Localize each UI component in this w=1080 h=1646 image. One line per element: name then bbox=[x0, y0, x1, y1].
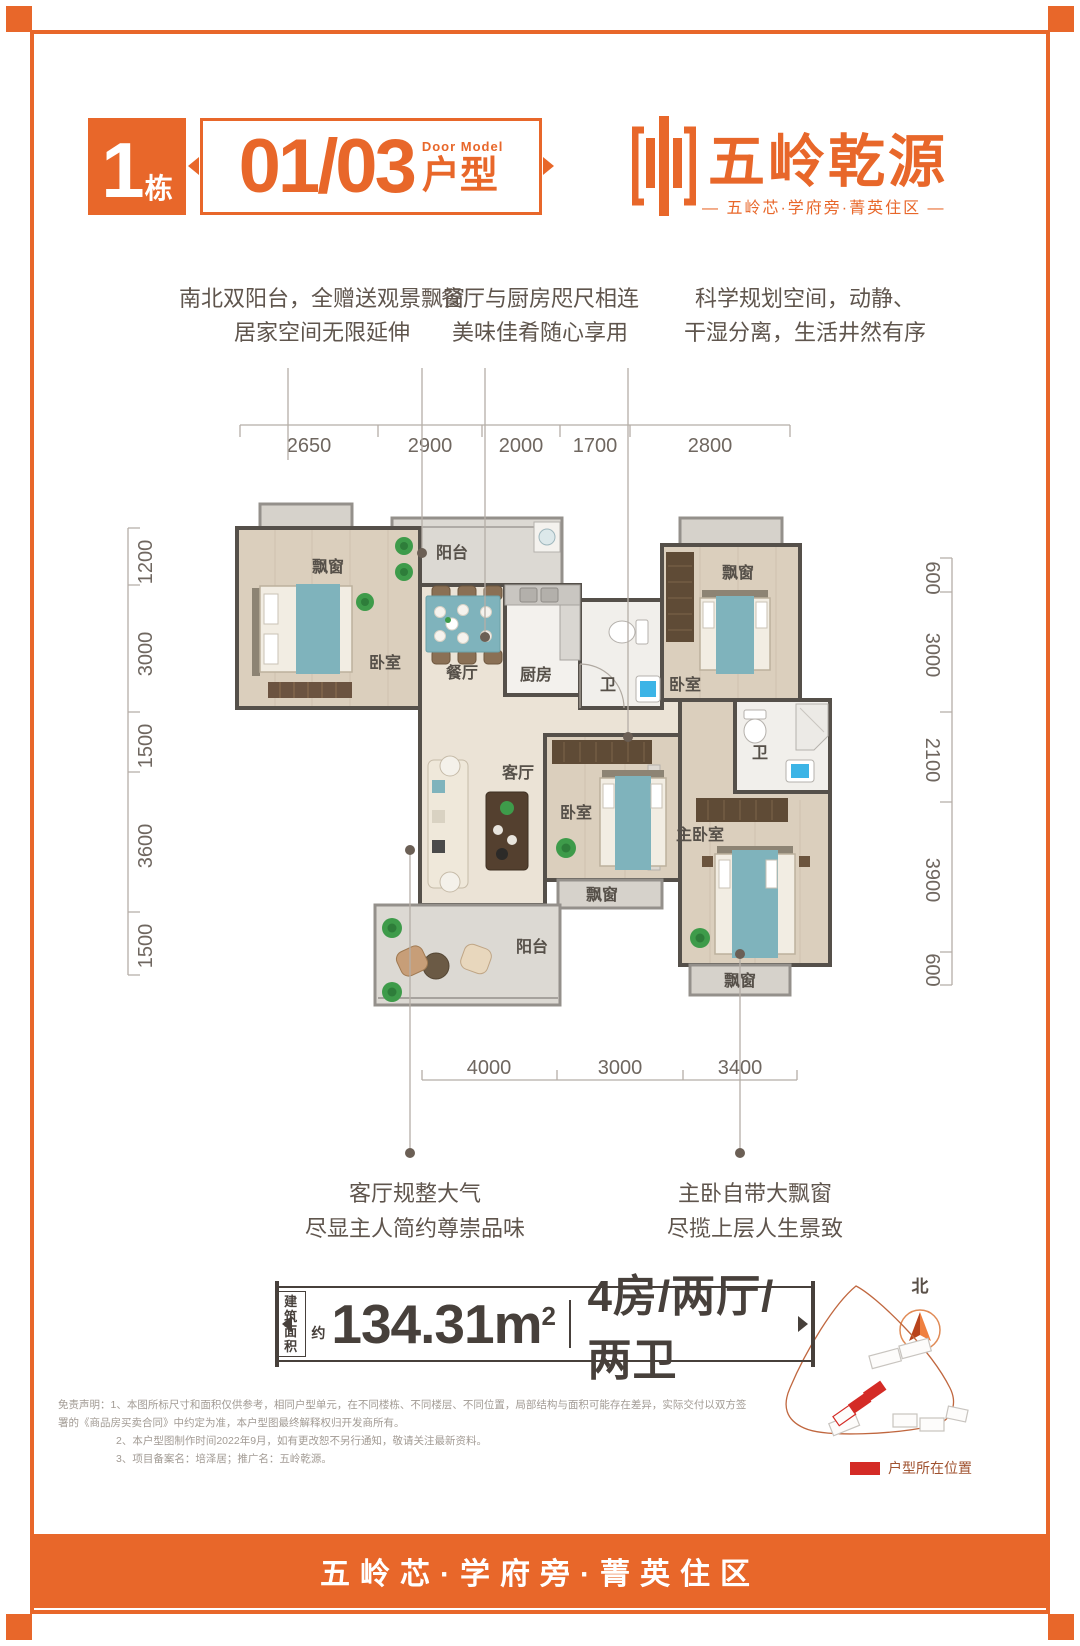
coffee-table bbox=[486, 792, 528, 870]
dim-top-2: 2900 bbox=[408, 435, 453, 457]
sofa bbox=[428, 756, 468, 892]
dim-right-5: 600 bbox=[921, 953, 943, 986]
legend-label: 户型所在位置 bbox=[888, 1460, 972, 1476]
room-label-balcony-south: 阳台 bbox=[516, 937, 548, 956]
bar-arrow-icon bbox=[798, 1316, 808, 1332]
bar-cap bbox=[275, 1281, 279, 1367]
dim-right-1: 600 bbox=[921, 561, 943, 594]
dim-left-2: 3000 bbox=[135, 632, 157, 677]
room-label-bath-2: 卫 bbox=[752, 745, 768, 762]
plant-icon bbox=[356, 593, 374, 611]
bed-2 bbox=[700, 590, 770, 674]
room-label-balcony-north: 阳台 bbox=[436, 543, 468, 562]
dim-right-4: 3900 bbox=[921, 858, 943, 903]
plant-icon bbox=[556, 838, 576, 858]
room-label-dining: 餐厅 bbox=[445, 663, 478, 682]
basin-icon bbox=[636, 676, 660, 702]
bed-3 bbox=[600, 770, 666, 870]
wardrobe bbox=[666, 552, 694, 642]
legend-swatch bbox=[850, 1462, 880, 1475]
toilet-icon bbox=[744, 710, 766, 743]
room-label-living: 客厅 bbox=[502, 763, 534, 782]
disclaimer-line: 3、项目备案名：培泽居；推广名：五岭乾源。 bbox=[58, 1450, 748, 1468]
dim-top-4: 1700 bbox=[573, 435, 618, 457]
approx-label: 约 bbox=[311, 1323, 325, 1343]
area-superscript: 2 bbox=[542, 1301, 555, 1331]
rug bbox=[268, 682, 352, 698]
dining-set bbox=[426, 586, 502, 664]
wardrobe bbox=[552, 740, 652, 764]
dim-bottom-1: 4000 bbox=[467, 1057, 512, 1079]
dim-left-5: 1500 bbox=[135, 924, 157, 969]
room-label-bay-window-3: 飘窗 bbox=[586, 885, 618, 904]
dim-top-1: 2650 bbox=[287, 435, 332, 457]
dim-right-3: 2100 bbox=[921, 738, 943, 783]
disclaimer: 免责声明：1、本图所标尺寸和面积仅供参考，相同户型单元，在不同楼栋、不同楼层、不… bbox=[58, 1396, 748, 1468]
dim-left-4: 3600 bbox=[135, 824, 157, 869]
site-buildings bbox=[829, 1338, 968, 1435]
bay-window-2 bbox=[680, 518, 782, 545]
room-label-master: 主卧室 bbox=[676, 825, 724, 844]
dim-top-5: 2800 bbox=[688, 435, 733, 457]
dim-left-1: 1200 bbox=[135, 540, 157, 585]
room-label-bath-1: 卫 bbox=[600, 677, 616, 694]
footer-slogan: 五岭芯·学府旁·菁英住区 bbox=[320, 1549, 760, 1593]
room-label-kitchen: 厨房 bbox=[520, 665, 552, 684]
floor-plan-poster: 1 栋 01/03 Door Model 户型 五岭乾源 — 五岭芯·学府旁·菁… bbox=[0, 0, 1080, 1646]
area-summary-bar: 建筑 面积 约 134.31m2 4房/两厅/两卫 bbox=[275, 1286, 815, 1362]
north-label: 北 bbox=[912, 1277, 929, 1296]
room-label-bay-window-1: 飘窗 bbox=[312, 557, 344, 576]
room-label-bedroom-1: 卧室 bbox=[369, 653, 401, 672]
area-value: 134.31m2 bbox=[331, 1292, 555, 1356]
bar-arrow-icon bbox=[282, 1316, 292, 1332]
dim-left-3: 1500 bbox=[135, 724, 157, 769]
disclaimer-line: 2、本户型图制作时间2022年9月，如有更改恕不另行通知，敬请关注最新资料。 bbox=[58, 1432, 748, 1450]
washer-icon bbox=[534, 522, 560, 552]
divider bbox=[569, 1300, 571, 1348]
bed-master bbox=[702, 846, 810, 958]
footer-slogan-bar: 五岭芯·学府旁·菁英住区 bbox=[34, 1534, 1046, 1608]
disclaimer-line: 免责声明：1、本图所标尺寸和面积仅供参考，相同户型单元，在不同楼栋、不同楼层、不… bbox=[58, 1396, 748, 1432]
room-label-bay-window-2: 飘窗 bbox=[722, 563, 754, 582]
highlighted-building bbox=[848, 1381, 887, 1414]
wardrobe bbox=[696, 798, 788, 822]
room-label-bedroom-3: 卧室 bbox=[560, 803, 592, 822]
floor-plan: 飘窗 阳台 卧室 餐厅 厨房 卫 飘窗 卧室 客厅 卧室 飘窗 主卧室 卫 飘窗… bbox=[237, 504, 830, 1005]
dim-top-3: 2000 bbox=[499, 435, 544, 457]
dim-right-2: 3000 bbox=[921, 633, 943, 678]
bar-cap bbox=[811, 1281, 815, 1367]
basin-icon bbox=[786, 760, 814, 782]
layout-spec: 4房/两厅/两卫 bbox=[587, 1260, 815, 1388]
dim-bottom-2: 3000 bbox=[598, 1057, 643, 1079]
room-label-bedroom-2: 卧室 bbox=[669, 675, 701, 694]
plant-icon bbox=[690, 928, 710, 948]
bed-1 bbox=[252, 584, 352, 676]
